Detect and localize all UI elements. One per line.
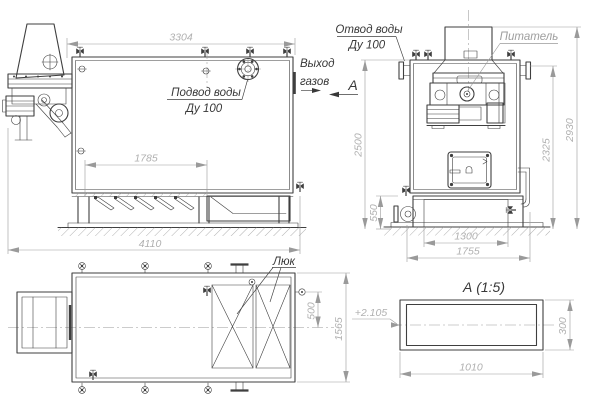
svg-text:3304: 3304	[169, 32, 193, 44]
gas-outlet-label-line1: Выход	[300, 58, 335, 70]
svg-text:550: 550	[368, 204, 380, 222]
feeder-hopper-front	[16, 24, 64, 78]
elevation-mark: +2.105	[355, 307, 388, 319]
water-inlet-label-line1: Подвод воды	[171, 87, 241, 99]
water-inlet-flange	[235, 56, 261, 82]
water-outlet-label-line1: Отвод воды	[335, 24, 403, 36]
center-mark-icon	[77, 148, 86, 154]
water-outlet-flange-side	[399, 62, 410, 79]
valve-icon	[89, 370, 97, 380]
dim-1010: 1010	[400, 352, 543, 378]
svg-text:1010: 1010	[459, 362, 483, 374]
center-mark-icon	[78, 66, 87, 72]
section-title: А (1:5)	[462, 279, 505, 295]
drawing-sheet: Подвод воды Ду 100 Выход газов А	[0, 0, 600, 400]
valve-icon	[507, 50, 515, 60]
gas-outlet-label-line2: газов	[300, 76, 329, 88]
valve-icon	[412, 50, 420, 60]
boiler-body-front	[72, 57, 293, 193]
inspection-door	[448, 152, 491, 188]
fuel-feeder-top	[17, 292, 72, 353]
svg-text:300: 300	[557, 317, 569, 335]
valve-icon	[142, 383, 149, 393]
bottom-flange	[231, 382, 249, 391]
side-nozzle-top	[295, 289, 305, 295]
door-handle	[466, 167, 472, 174]
drain-pipe	[506, 168, 529, 214]
ash-bin-front	[207, 196, 290, 221]
svg-text:4110: 4110	[139, 238, 162, 250]
dim-500: 500	[305, 292, 322, 328]
valve-icon	[79, 383, 86, 393]
valve-icon	[246, 47, 254, 57]
section-cut-label: А	[347, 77, 357, 93]
svg-text:2930: 2930	[564, 118, 576, 143]
center-mark-icon	[202, 68, 211, 74]
top-view: Люк 500 1565	[8, 256, 350, 393]
water-inlet-flange-side	[520, 62, 531, 79]
valve-icon	[205, 383, 212, 393]
ash-outlet-flange	[394, 206, 398, 222]
side-view: Отвод воды Ду 100 Питатель 2500 550 1300…	[335, 10, 581, 262]
valve-icon	[506, 206, 516, 214]
ground-hatching	[58, 228, 306, 237]
water-inlet-label-line2: Ду 100	[184, 103, 223, 115]
svg-text:1755: 1755	[456, 246, 480, 258]
fuel-feeder-front	[3, 24, 73, 140]
valve-icon	[205, 263, 212, 273]
svg-text:1565: 1565	[333, 317, 345, 341]
dim-3304: 3304	[67, 32, 295, 59]
section-view: А (1:5) +2.105 1010 300	[352, 279, 574, 378]
valve-icon	[79, 263, 86, 273]
valve-icon	[296, 182, 304, 192]
feeder-side	[427, 73, 505, 129]
water-outlet-label-line2: Ду 100	[347, 40, 386, 52]
top-flange	[231, 265, 249, 274]
svg-text:1785: 1785	[134, 153, 158, 165]
hatch-panels	[212, 285, 290, 368]
gas-flow-arrow	[312, 88, 321, 93]
dim-2930: 2930	[492, 27, 581, 229]
svg-text:2325: 2325	[541, 138, 553, 163]
valve-icon	[142, 263, 149, 273]
svg-text:2500: 2500	[353, 133, 365, 158]
dim-2325: 2325	[530, 66, 557, 229]
hatch-label: Люк	[272, 256, 296, 268]
valve-icon	[201, 47, 209, 57]
svg-text:500: 500	[306, 302, 318, 320]
valve-icon	[203, 286, 211, 296]
side-base	[384, 186, 550, 235]
boiler-technical-drawing: Подвод воды Ду 100 Выход газов А	[0, 0, 600, 400]
valve-icon	[424, 50, 432, 60]
svg-text:1300: 1300	[454, 231, 478, 243]
front-view: Подвод воды Ду 100 Выход газов А	[3, 24, 359, 254]
dim-1565: 1565	[297, 273, 350, 382]
section-cut-arrow	[329, 92, 339, 97]
valve-icon	[283, 47, 291, 57]
valve-icon	[76, 47, 84, 57]
dim-2500: 2500	[353, 60, 411, 229]
front-base	[58, 193, 306, 236]
grate-slats	[94, 196, 194, 210]
valve-icon	[402, 186, 410, 196]
feeder-label: Питатель	[500, 31, 559, 43]
